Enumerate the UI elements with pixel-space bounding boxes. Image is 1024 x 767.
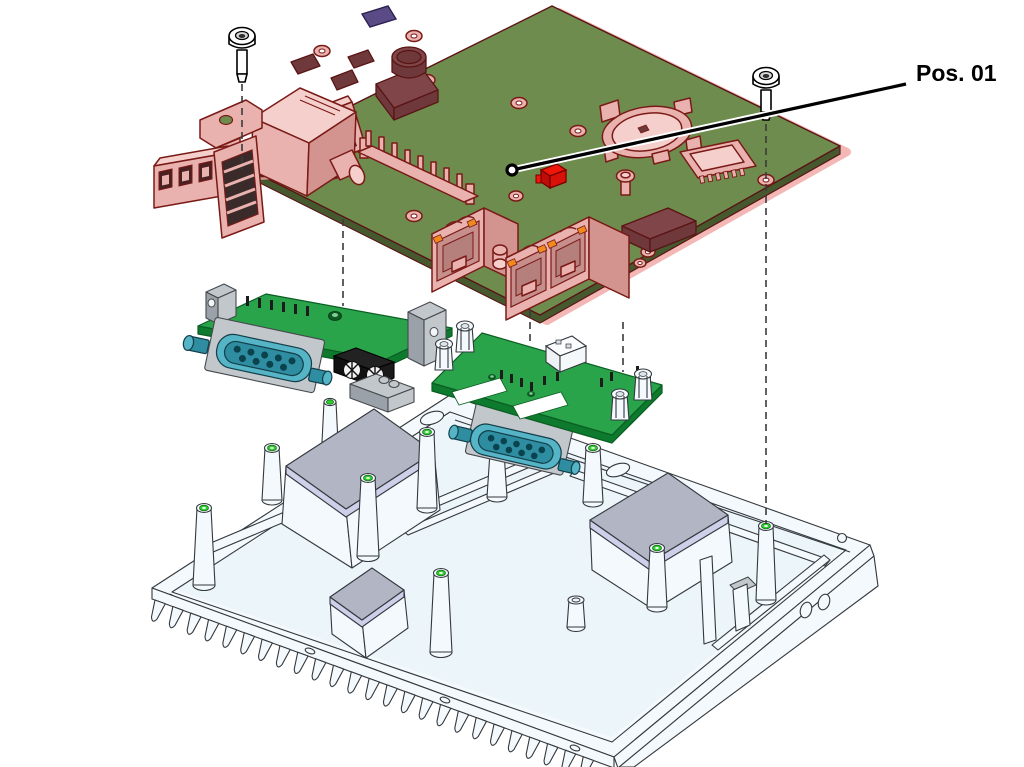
exploded-view-figure: Pos. 01 xyxy=(0,0,1024,767)
board-hole xyxy=(329,312,342,321)
jack-screwlock xyxy=(493,245,507,269)
leader-dot xyxy=(507,165,517,175)
screw-left xyxy=(229,28,255,83)
position-callout-label: Pos. 01 xyxy=(916,60,997,87)
serial-board-left xyxy=(179,284,452,412)
chassis-boss xyxy=(567,596,585,632)
serial-board-right xyxy=(432,321,662,477)
board-slot xyxy=(362,6,396,27)
supercap xyxy=(392,47,426,78)
usb-connector xyxy=(214,136,264,238)
main-board xyxy=(154,6,847,323)
exploded-view-diagram xyxy=(0,0,1024,767)
